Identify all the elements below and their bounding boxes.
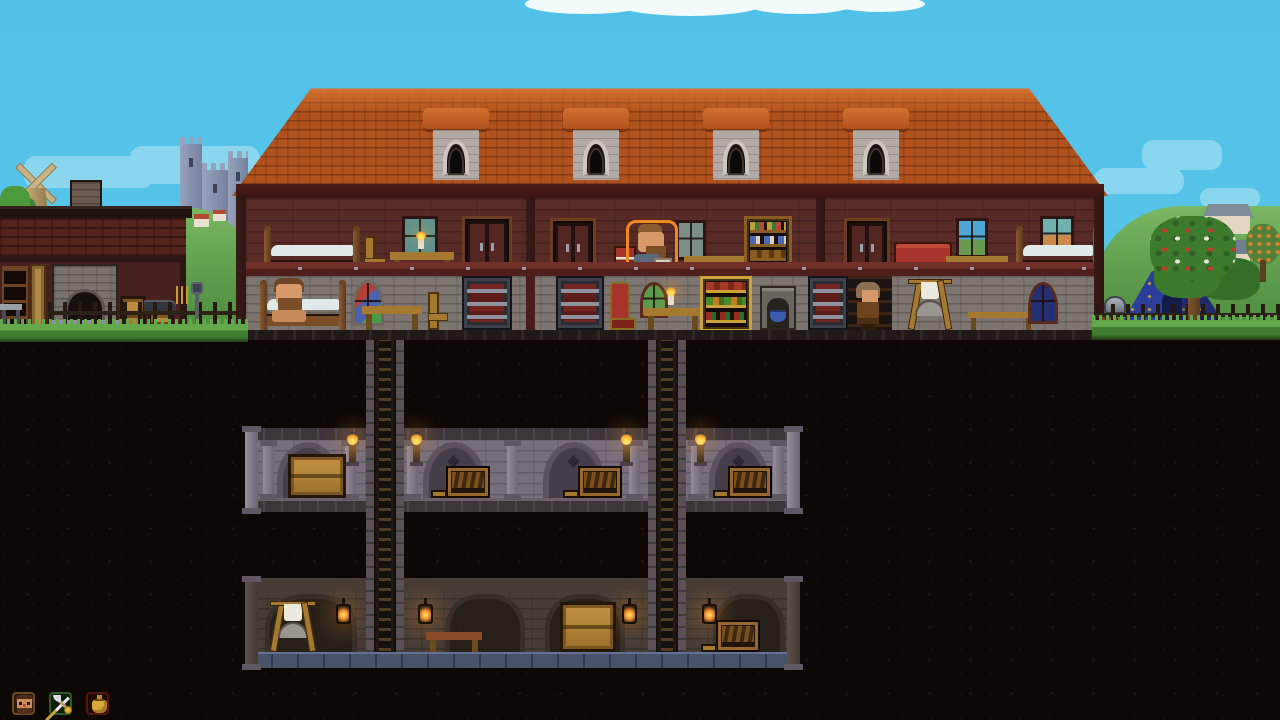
cloud-puff (615, 0, 765, 16)
manor (236, 184, 1104, 338)
tiny-house (213, 210, 226, 221)
wall-divider (526, 198, 535, 262)
bed-mattress (1023, 245, 1093, 256)
icon-nose (23, 704, 26, 707)
cellar-level (245, 428, 800, 512)
tiny-house (194, 214, 209, 227)
hanging-lantern (702, 604, 717, 624)
grass-right (1092, 320, 1280, 340)
book-row (750, 250, 786, 261)
rack-cloth (284, 604, 302, 621)
game-viewport (0, 0, 1280, 720)
cellar-column (629, 442, 640, 498)
gold-sack-icon (92, 695, 107, 714)
hanging-lantern (622, 604, 637, 624)
cellar-floor (245, 498, 800, 512)
dungeon-ceiling (245, 578, 800, 591)
table (362, 306, 422, 330)
icon-axe-head (53, 695, 61, 702)
wall-torch (413, 444, 420, 464)
villager-face (862, 290, 878, 302)
shaft-wall (396, 338, 404, 652)
wooden-table (426, 632, 482, 652)
window (676, 220, 706, 260)
cloud-puff (835, 0, 925, 12)
storage-crate (288, 454, 346, 498)
bench (968, 312, 1034, 330)
icon-sack-tie (95, 699, 104, 701)
red-throne (608, 282, 638, 330)
hooded-villager[interactable] (852, 282, 884, 330)
unit-portrait-button[interactable] (10, 690, 37, 717)
iron-door (556, 276, 604, 330)
cellar-column (507, 442, 518, 498)
dormer-cap (843, 108, 909, 132)
ladder (376, 338, 394, 652)
table-with-candle (644, 308, 702, 330)
grass-left (0, 324, 248, 342)
cellar-wall (245, 428, 258, 512)
shaft-wall (366, 338, 374, 652)
book-row (750, 236, 786, 247)
wood-step (563, 490, 579, 498)
wood-step (713, 490, 729, 498)
dormer-arch-window (443, 140, 469, 176)
chair (426, 292, 450, 330)
eave-fascia (236, 184, 1104, 198)
upper-floor (246, 198, 1094, 262)
rack-wheel (915, 300, 945, 316)
hanging-lantern (418, 604, 433, 624)
icon-eyes (19, 702, 22, 705)
wall-divider (816, 198, 825, 262)
military-button[interactable] (47, 690, 74, 717)
storage-crate (560, 602, 616, 652)
wall-torch (697, 444, 704, 464)
shaft-wall (648, 338, 656, 652)
throne-back (610, 282, 630, 322)
icon-coin (64, 706, 72, 714)
open-supply-crate (578, 466, 622, 498)
rack-wheel (278, 622, 308, 638)
treasury-button[interactable] (84, 690, 111, 717)
cloud (1094, 168, 1184, 194)
pantry-shelf (700, 276, 752, 332)
dormer-window (848, 108, 904, 180)
ladder-shaft (648, 338, 686, 652)
crossed-axe-sword-icon (52, 694, 73, 715)
orange-tree-trunk (1260, 260, 1266, 282)
smithy-brick-wall (0, 218, 186, 256)
food-row (706, 297, 746, 308)
corner-post (236, 196, 246, 330)
wood-step (701, 644, 717, 652)
hanging-lantern (336, 604, 351, 624)
shaft-wall (678, 338, 686, 652)
dormer-cap (703, 108, 769, 132)
dark-blue-window (1028, 282, 1058, 324)
dungeon-wall (245, 578, 258, 668)
icon-beard (17, 708, 32, 714)
throne-seat (610, 318, 636, 330)
rack-cloth (921, 282, 939, 299)
tree-foliage (1150, 216, 1236, 282)
foundation-sill (236, 330, 1104, 340)
cellar-ceiling (245, 428, 800, 440)
dungeon-wall (787, 578, 800, 668)
dormer-arch-window (723, 140, 749, 176)
food-row (706, 282, 746, 293)
tanning-rack (908, 276, 952, 330)
orange-tree-foliage (1246, 224, 1280, 264)
floor-beam (236, 262, 1104, 276)
food-row (706, 312, 746, 323)
cellar-column (263, 442, 274, 498)
book-row (750, 222, 786, 233)
dormer-window (428, 108, 484, 180)
window (956, 218, 988, 258)
wall-torch (623, 444, 630, 464)
dormer-window (568, 108, 624, 180)
dwarf-chest (272, 310, 306, 322)
dungeon-level (245, 578, 800, 668)
lamp-head (191, 282, 203, 294)
cellar-wall (787, 428, 800, 512)
dwarf-face-icon (16, 695, 33, 714)
villager-body (857, 302, 879, 326)
open-iron-door (808, 276, 848, 330)
blue-cauldron (770, 310, 786, 322)
tanning-rack (270, 598, 316, 652)
dormer-arch-window (583, 140, 609, 176)
dungeon-floor (245, 652, 800, 668)
open-supply-crate (716, 620, 760, 652)
open-supply-crate (446, 466, 490, 498)
open-supply-crate (728, 466, 772, 498)
wood-step (431, 490, 447, 498)
ladder (658, 338, 676, 652)
dormer-cap (563, 108, 629, 132)
smithy-roof (0, 206, 192, 218)
cellar-column (773, 442, 784, 498)
dormer-cap (423, 108, 489, 132)
candle (668, 294, 674, 305)
dormer-arch-window (863, 140, 889, 176)
ladder-shaft (366, 338, 404, 652)
manor-roof (232, 84, 1108, 196)
cloud-band (525, 0, 925, 18)
stone-pillar (526, 276, 535, 330)
dormer-window (708, 108, 764, 180)
icon-sack-body (92, 700, 107, 713)
bed-mattress (271, 245, 353, 256)
orange-tree (1246, 224, 1280, 282)
dwarf-in-bed[interactable] (268, 278, 312, 324)
wheat-tuft (176, 286, 188, 304)
wall-torch (349, 444, 356, 464)
ground-floor (246, 276, 1094, 330)
hearth (760, 286, 796, 330)
cloud (1142, 140, 1222, 170)
iron-door (462, 276, 512, 330)
candle (418, 238, 424, 249)
